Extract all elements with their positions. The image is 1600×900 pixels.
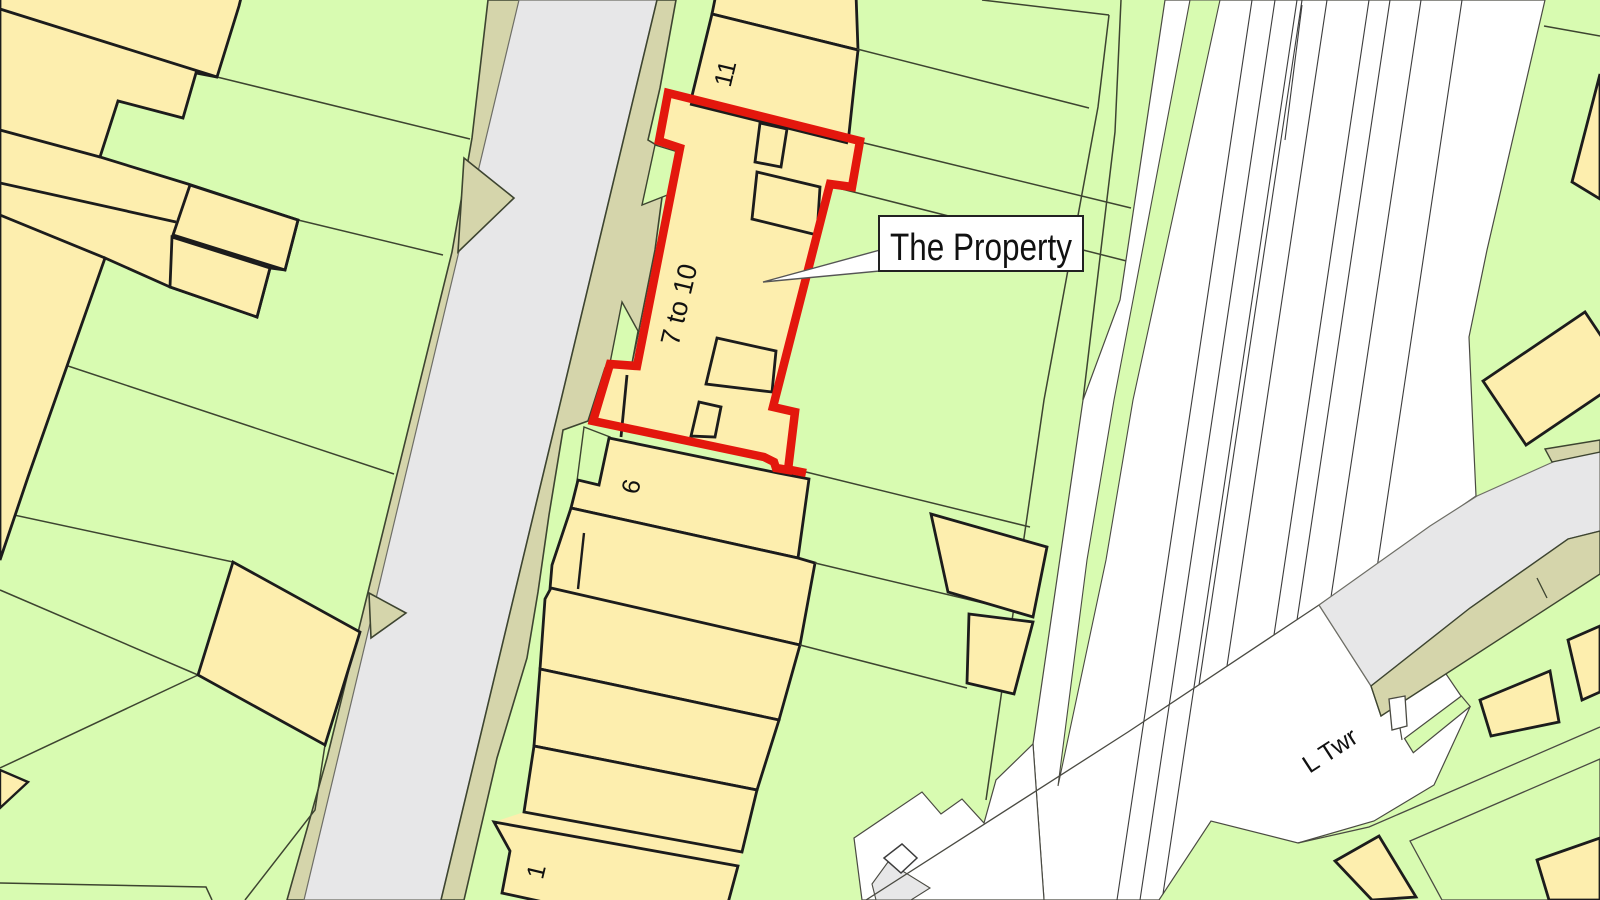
svg-text:The Property: The Property: [890, 227, 1072, 269]
